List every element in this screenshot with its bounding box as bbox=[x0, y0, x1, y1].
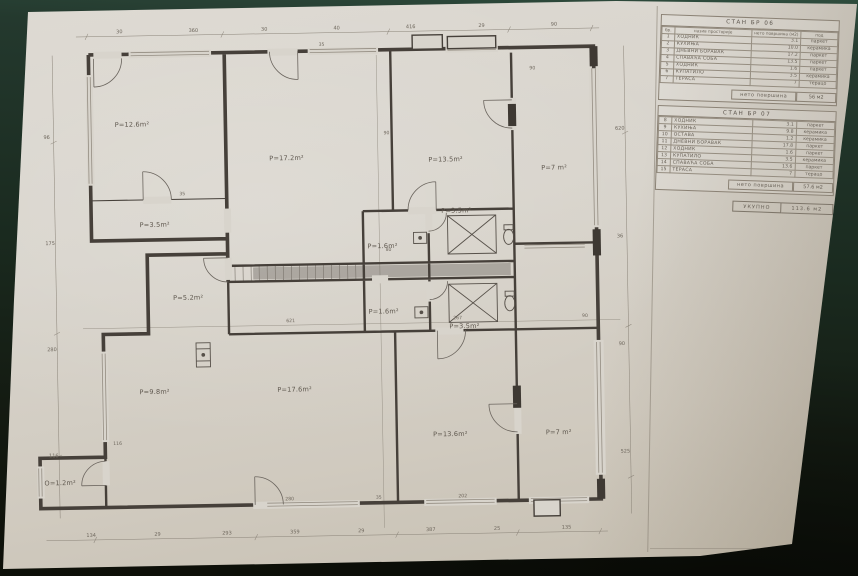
subtotal-06: нето површина 56 м2 bbox=[659, 86, 836, 102]
dimension-text: 35 bbox=[319, 42, 325, 48]
dimension-text: 280 bbox=[285, 496, 294, 502]
table-cell: ТЕРАСА bbox=[673, 75, 750, 85]
table-cell: терацо bbox=[799, 80, 836, 88]
room-label: P=7 m² bbox=[541, 163, 567, 171]
dimension-lines bbox=[38, 24, 635, 543]
toilet-06 bbox=[503, 225, 513, 245]
dimension-text: 80 bbox=[386, 247, 392, 253]
room-label: P=12.6m² bbox=[115, 120, 150, 129]
room-label: P=1.6m² bbox=[367, 242, 398, 251]
grand-total: УКУПНО 113.6 м2 bbox=[654, 198, 833, 215]
dimension-text: 116 bbox=[113, 441, 122, 447]
dimension-text: 280 bbox=[47, 347, 57, 353]
subtotal-label: нето површина bbox=[728, 179, 793, 191]
room-label: P=3.5m² bbox=[441, 206, 472, 215]
dimension-text: 90 bbox=[582, 313, 588, 319]
room-label: P=3.5m² bbox=[140, 221, 171, 230]
toilet-07 bbox=[505, 291, 515, 311]
subtotal-value: 57.6 м2 bbox=[793, 182, 833, 193]
dimension-text: 90 bbox=[384, 130, 390, 136]
title-block-bottom-rule bbox=[650, 548, 846, 549]
room-label: P=3.5m² bbox=[449, 322, 480, 331]
apartment-table-06: СТАН БР 06 бр. назив просторије нето пов… bbox=[658, 14, 840, 106]
dimension-text: 96 bbox=[43, 135, 49, 141]
room-label: P=1.6m² bbox=[368, 307, 399, 316]
dimension-text: 29 bbox=[478, 23, 484, 29]
room-label: P=17.6m² bbox=[277, 385, 312, 394]
dimension-text: 35 bbox=[179, 191, 185, 197]
room-label: P=17.2m² bbox=[269, 154, 304, 163]
dimension-text: 621 bbox=[286, 318, 295, 324]
room-label: P=5.2m² bbox=[173, 294, 204, 303]
total-value: 113.6 м2 bbox=[781, 202, 833, 215]
dimension-text: 387 bbox=[426, 527, 436, 533]
floor-plan: P=12.6m² P=3.5m² P=17.2m² P=13.5m² P=7 m… bbox=[17, 4, 671, 571]
kitchen-unit bbox=[196, 343, 211, 367]
legend-tables: СТАН БР 06 бр. назив просторије нето пов… bbox=[654, 14, 840, 215]
dimension-text: 29 bbox=[154, 532, 160, 538]
dimension-text: 267 bbox=[453, 315, 462, 321]
dimension-text: 116 bbox=[49, 453, 59, 459]
floor-plan-drawing: P=12.6m² P=3.5m² P=17.2m² P=13.5m² P=7 m… bbox=[17, 4, 671, 571]
fixtures bbox=[194, 215, 516, 367]
room-label: O=1.2m² bbox=[44, 479, 76, 488]
dimension-text: 293 bbox=[222, 531, 232, 537]
dimension-text: 359 bbox=[290, 529, 300, 535]
table-cell: 7 bbox=[750, 78, 800, 87]
table-cell: терацо bbox=[794, 170, 833, 178]
dimension-text: 30 bbox=[116, 29, 122, 35]
paper-sheet: P=12.6m² P=3.5m² P=17.2m² P=13.5m² P=7 m… bbox=[0, 0, 858, 576]
bathtub-06 bbox=[447, 215, 496, 254]
room-label: P=9.8m² bbox=[139, 388, 170, 397]
table-cell: 7 bbox=[660, 75, 673, 82]
subtotal-value: 56 м2 bbox=[796, 91, 836, 102]
dimension-text: 134 bbox=[86, 533, 96, 539]
dimension-text: 202 bbox=[458, 493, 467, 499]
dimension-text: 36 bbox=[617, 233, 623, 239]
room-label: P=7 m² bbox=[546, 428, 572, 436]
dimension-text: 525 bbox=[621, 449, 631, 455]
dimension-text: 90 bbox=[529, 65, 535, 71]
dimension-text: 175 bbox=[45, 241, 55, 247]
subtotal-label: нето површина bbox=[731, 89, 796, 101]
sink-06 bbox=[413, 232, 426, 243]
table-cell: 15 bbox=[657, 165, 670, 172]
dimension-text: 30 bbox=[261, 27, 267, 33]
dimension-text: 35 bbox=[376, 495, 382, 501]
apartment-table-07: СТАН БР 07 8ХОДНИК3.1паркет9КУХИЊА9.8кер… bbox=[655, 104, 837, 196]
dimension-text: 360 bbox=[189, 28, 199, 34]
dimension-text: 25 bbox=[494, 526, 500, 532]
room-label: P=13.5m² bbox=[428, 155, 463, 164]
dimension-text: 90 bbox=[619, 341, 625, 347]
dimension-text: 620 bbox=[615, 126, 625, 132]
table-cell: ТЕРАСА bbox=[670, 166, 752, 176]
dimension-text: 90 bbox=[551, 22, 557, 28]
sink-07 bbox=[415, 307, 428, 318]
room-label: P=13.6m² bbox=[433, 430, 468, 439]
dimension-text: 29 bbox=[358, 528, 364, 534]
dimension-text: 135 bbox=[562, 525, 572, 531]
total-label: УКУПНО bbox=[732, 201, 781, 214]
subtotal-07: нето површина 57.6 м2 bbox=[656, 177, 833, 193]
dimension-text: 40 bbox=[333, 25, 339, 31]
table-cell: 7 bbox=[751, 169, 795, 178]
dimension-text: 416 bbox=[406, 24, 416, 30]
